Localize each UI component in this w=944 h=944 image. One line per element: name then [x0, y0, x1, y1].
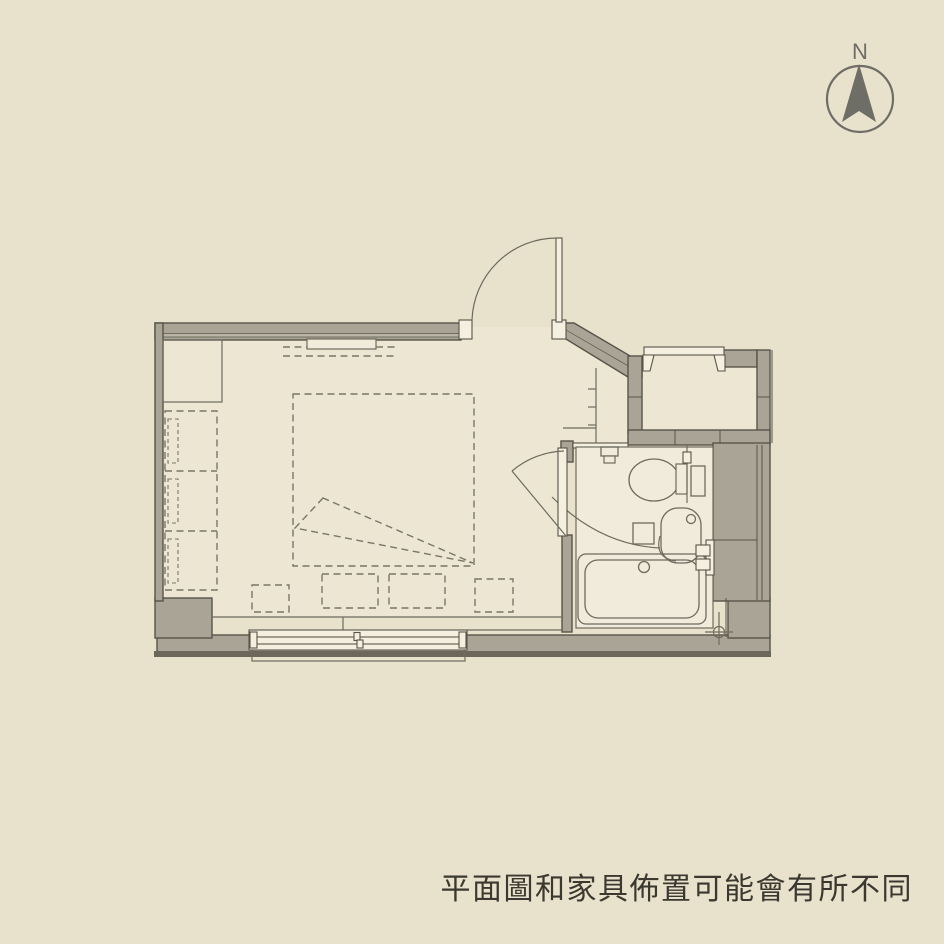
floor-plan-canvas: N 平面圖和家具佈置可能會有所不同 [0, 0, 944, 944]
small-room-top-wall [723, 350, 757, 367]
window-center-lock [357, 640, 363, 648]
bathroom-door-leaf [558, 448, 567, 536]
window-end-block [250, 632, 257, 648]
partition-bracket [683, 452, 691, 463]
entry-door [459, 238, 566, 339]
entry-threshold [472, 327, 557, 340]
bathroom-left-wall [562, 535, 572, 632]
entry-door-leaf [556, 238, 562, 322]
toilet-paper-holder-bar [604, 456, 615, 463]
north-arrow-icon [842, 64, 876, 122]
window-center-lock [354, 633, 360, 641]
door-jamb [459, 320, 472, 339]
small-window-frame [644, 347, 724, 355]
bath-faucet [696, 559, 710, 570]
corner-block-right [728, 598, 770, 638]
bath-faucet [696, 545, 710, 556]
door-jamb [552, 320, 566, 339]
service-shaft [713, 443, 770, 601]
compass-north-label: N [827, 40, 893, 64]
top-wall-stripe [157, 334, 459, 338]
corner-block-left [155, 598, 212, 638]
top-wall [155, 323, 461, 340]
outer-bottom-edge [154, 651, 771, 657]
small-room-left-wall [628, 356, 642, 433]
floor-plan [0, 0, 944, 944]
entry-door-swing-arc [472, 238, 557, 320]
hanger-rod [307, 339, 376, 349]
main-room-floor [163, 340, 563, 617]
disclaimer-caption: 平面圖和家具佈置可能會有所不同 [0, 864, 913, 908]
toilet-tank [676, 464, 687, 494]
compass [827, 64, 893, 132]
window-end-block [459, 632, 466, 648]
bathroom-floor [576, 447, 713, 628]
left-wall [155, 323, 163, 601]
